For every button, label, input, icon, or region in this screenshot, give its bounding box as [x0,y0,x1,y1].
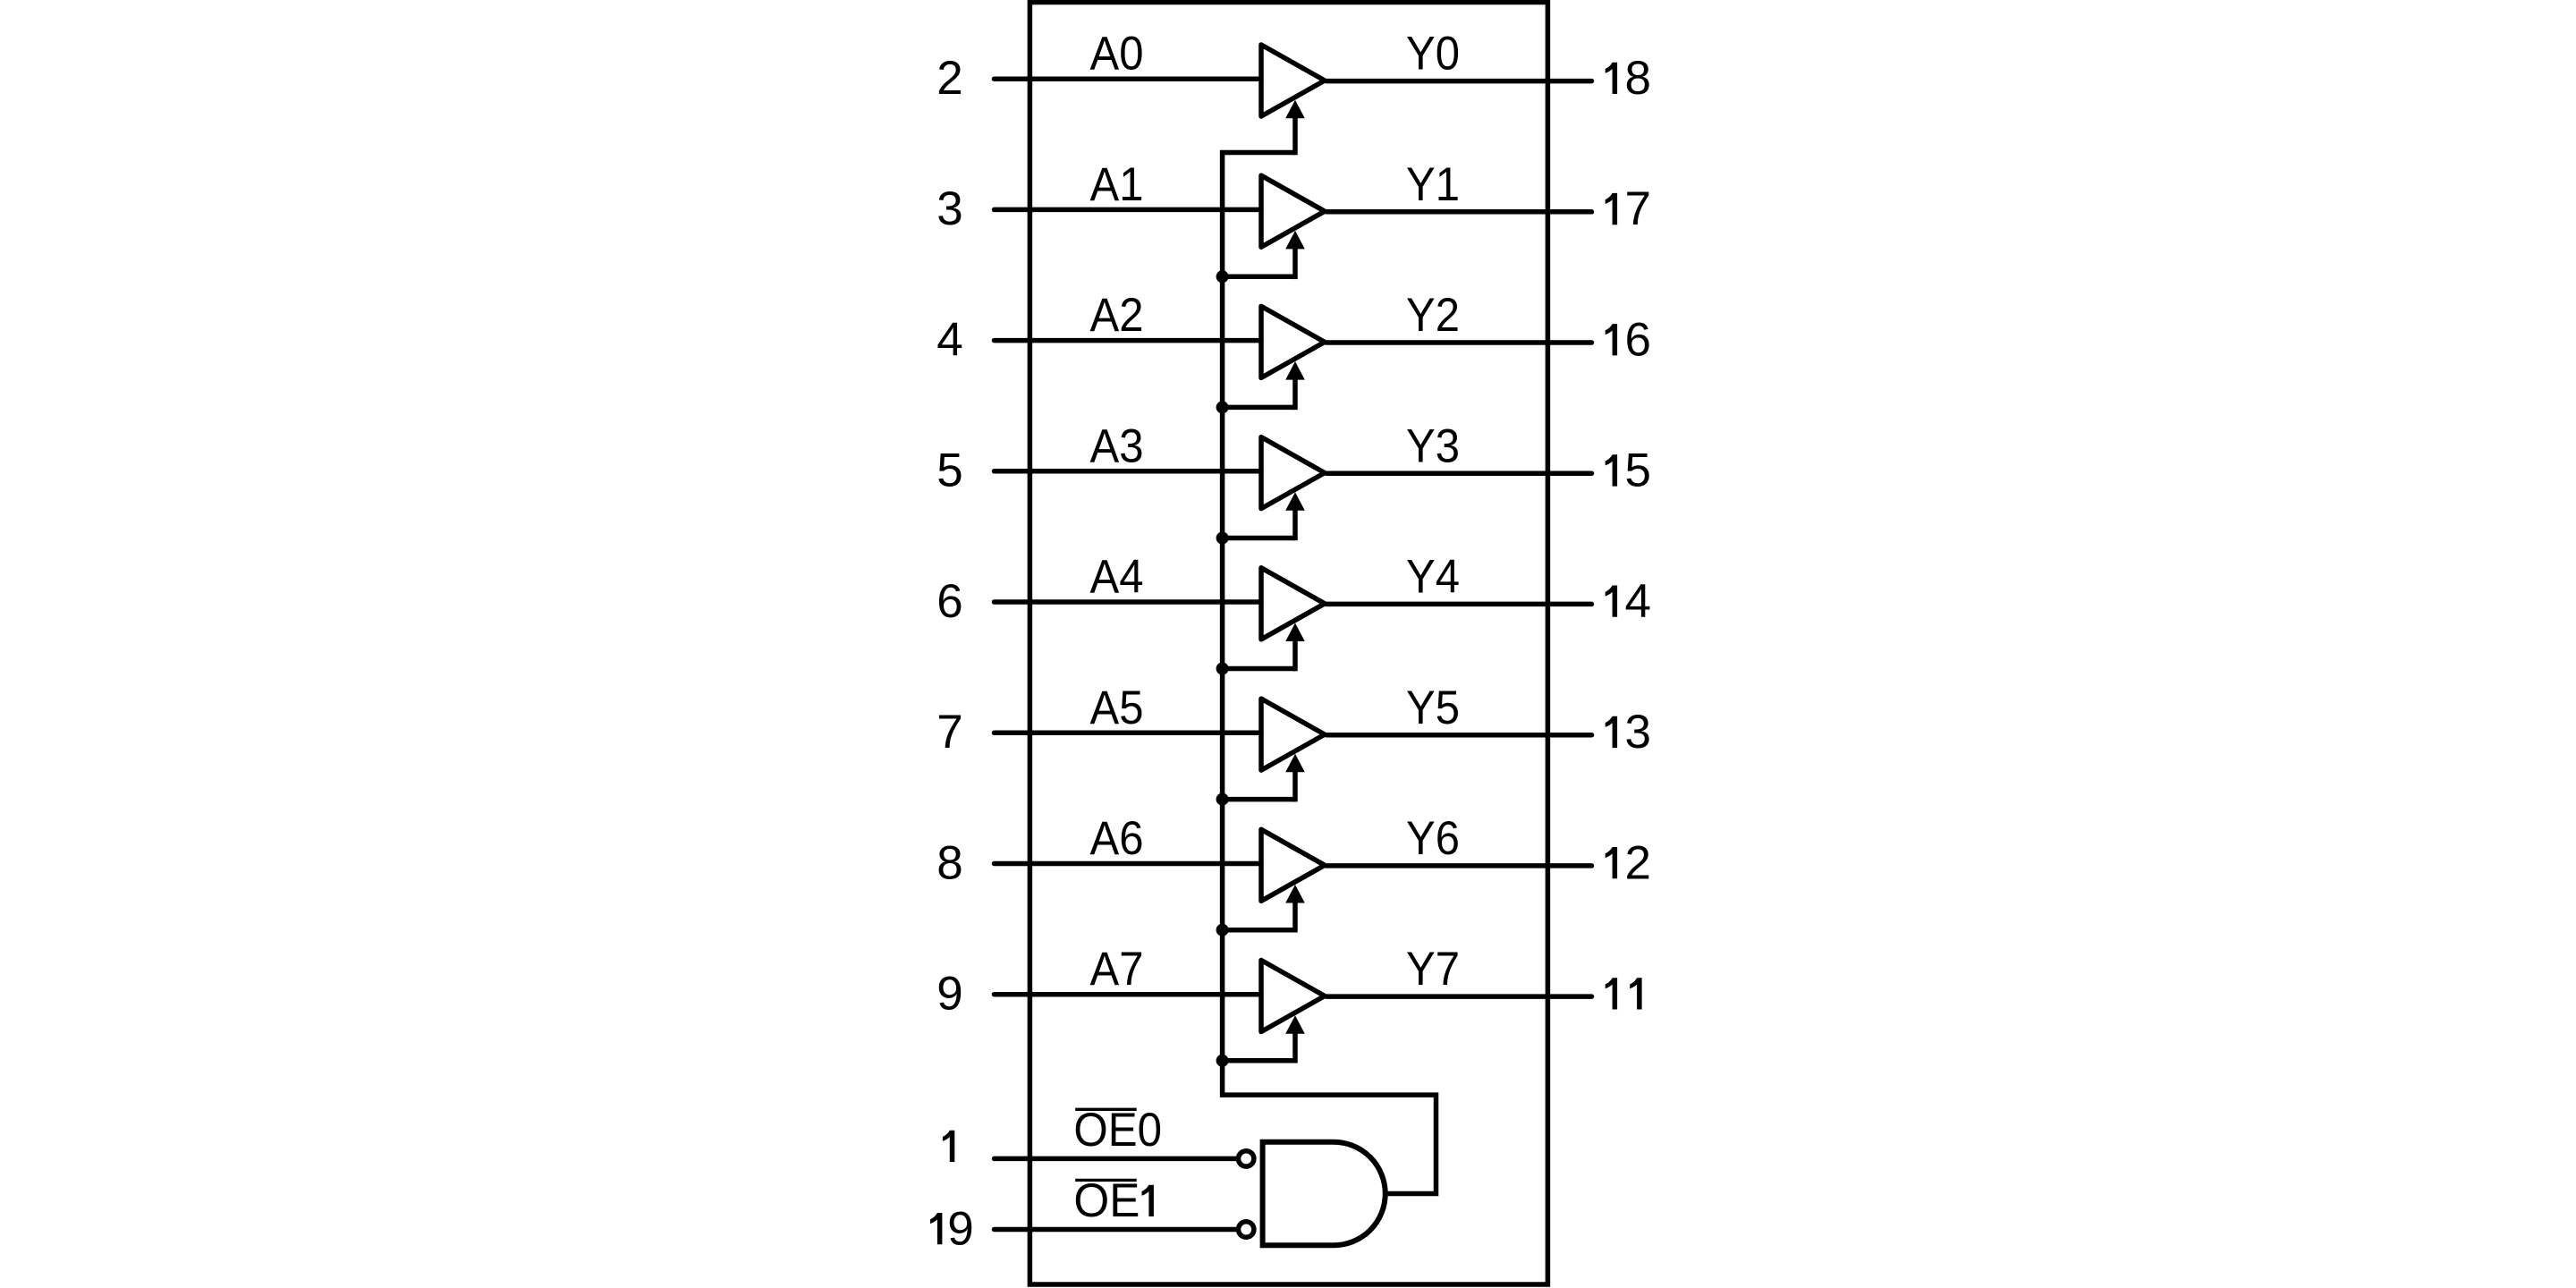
svg-text:8: 8 [1625,52,1651,105]
svg-text:A1: A1 [1090,158,1144,211]
svg-text:6: 6 [936,575,962,628]
svg-text:3: 3 [936,182,962,235]
svg-text:5: 5 [1625,445,1651,497]
svg-text:Y6: Y6 [1406,812,1460,865]
svg-text:4: 4 [936,313,962,366]
svg-text:7: 7 [936,706,962,758]
svg-text:9: 9 [936,968,962,1021]
svg-text:Y1: Y1 [1406,158,1460,211]
svg-text:OE: OE [1073,1174,1140,1227]
svg-text:4: 4 [1625,575,1651,628]
svg-text:3: 3 [1625,706,1651,758]
svg-text:2: 2 [936,52,962,105]
svg-text:9: 9 [947,1202,973,1255]
svg-text:7: 7 [1625,182,1651,235]
svg-text:Y2: Y2 [1406,289,1460,342]
svg-text:A7: A7 [1090,943,1144,996]
svg-text:Y5: Y5 [1406,682,1460,734]
svg-text:2: 2 [1625,836,1651,889]
svg-text:A4: A4 [1090,551,1144,604]
svg-text:A0: A0 [1090,28,1144,80]
svg-text:6: 6 [1625,313,1651,366]
svg-text:Y3: Y3 [1406,419,1460,472]
svg-text:Y4: Y4 [1406,551,1460,604]
svg-text:8: 8 [936,836,962,889]
svg-text:A2: A2 [1090,289,1144,342]
svg-text:A6: A6 [1090,812,1144,865]
svg-text:5: 5 [936,445,962,497]
svg-text:A3: A3 [1090,419,1144,472]
svg-text:OE0: OE0 [1073,1104,1162,1157]
svg-text:A5: A5 [1090,682,1144,734]
svg-text:Y0: Y0 [1406,28,1460,80]
svg-text:Y7: Y7 [1406,943,1460,996]
